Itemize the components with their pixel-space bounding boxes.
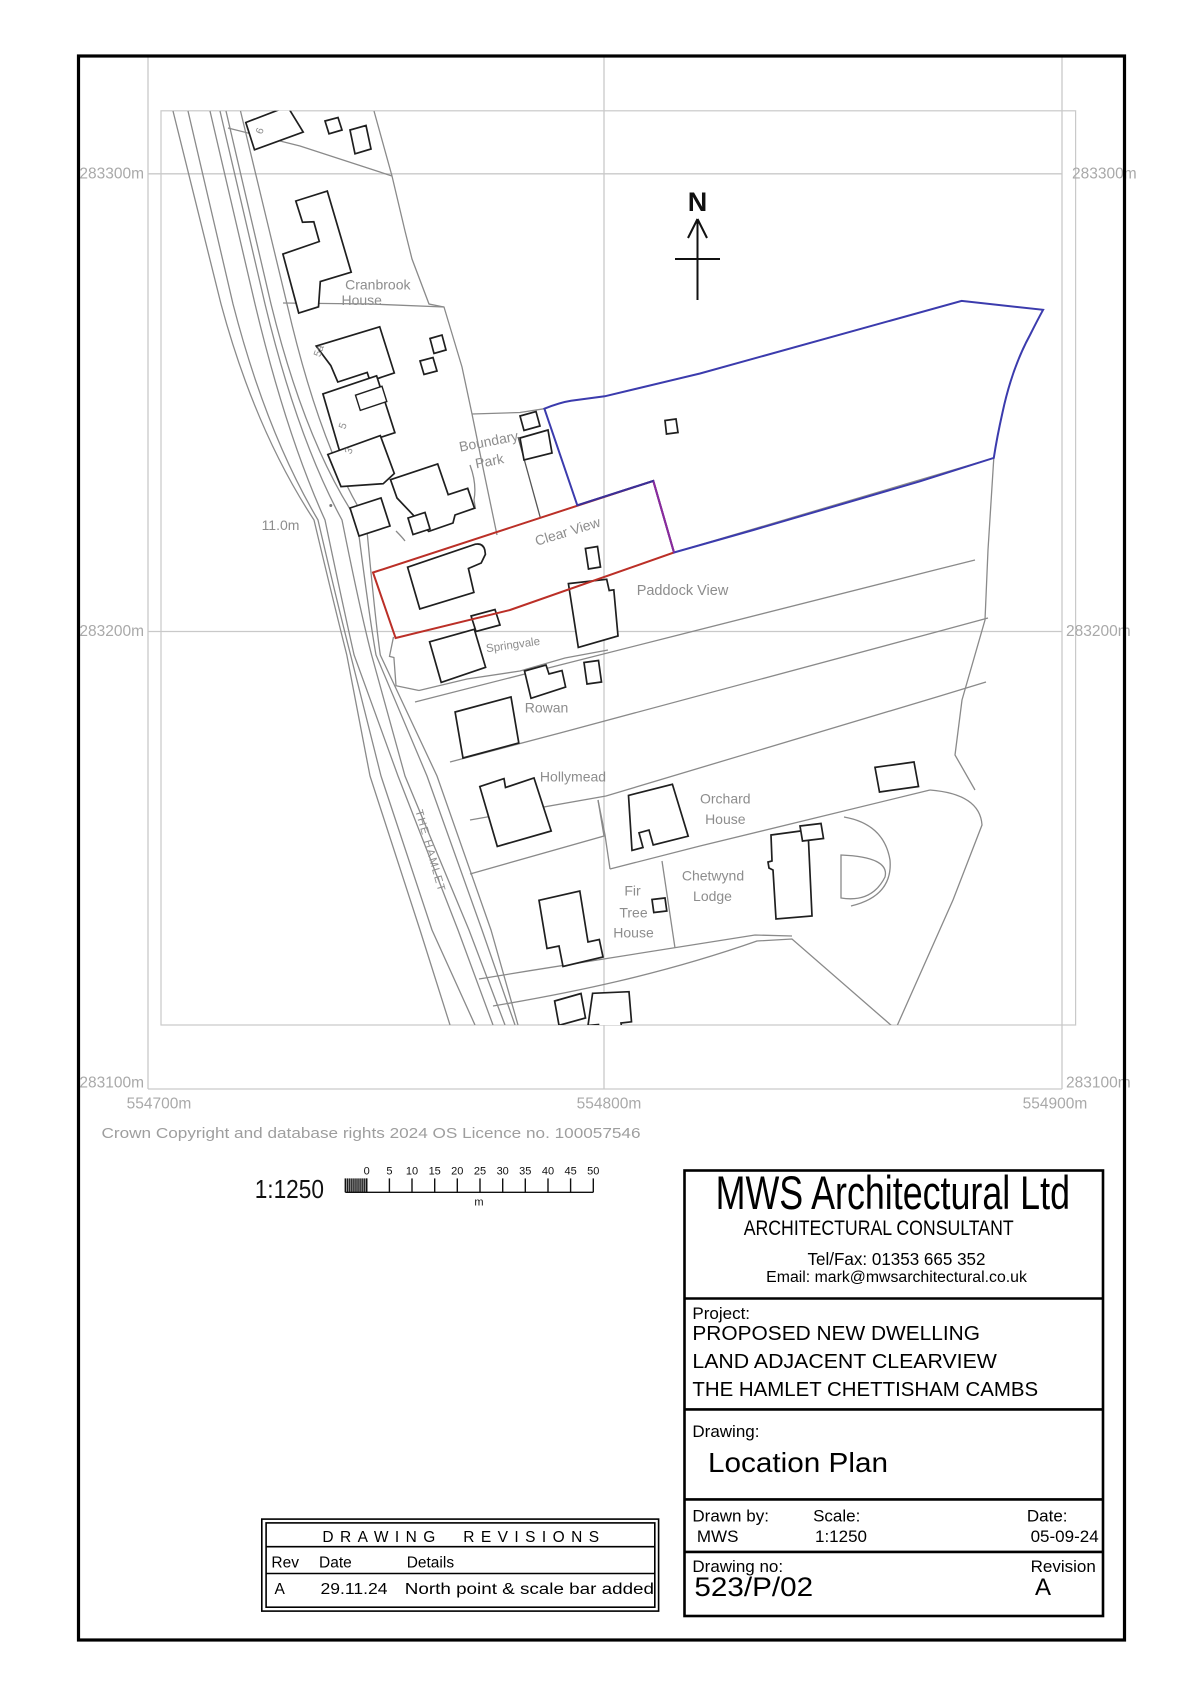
svg-text:Lodge: Lodge xyxy=(693,888,732,904)
svg-text:ARCHITECTURAL CONSULTANT: ARCHITECTURAL CONSULTANT xyxy=(744,1217,1014,1240)
svg-text:15: 15 xyxy=(429,1166,441,1178)
svg-text:283300m: 283300m xyxy=(79,166,144,183)
svg-text:North point & scale bar added: North point & scale bar added xyxy=(405,1581,654,1598)
svg-text:MWS Architectural Ltd: MWS Architectural Ltd xyxy=(716,1166,1070,1219)
svg-text:40: 40 xyxy=(542,1166,554,1178)
svg-text:11.0m: 11.0m xyxy=(262,517,300,533)
svg-text:Date: Date xyxy=(319,1555,352,1572)
svg-text:LAND ADJACENT CLEARVIEW: LAND ADJACENT CLEARVIEW xyxy=(692,1351,997,1373)
svg-text:35: 35 xyxy=(519,1166,531,1178)
svg-text:Email: mark@mwsarchitectural.c: Email: mark@mwsarchitectural.co.uk xyxy=(766,1269,1027,1286)
svg-text:554800m: 554800m xyxy=(577,1096,642,1113)
svg-text:283100m: 283100m xyxy=(1066,1075,1131,1092)
svg-text:283200m: 283200m xyxy=(79,623,144,640)
svg-text:30: 30 xyxy=(497,1166,509,1178)
svg-text:A: A xyxy=(1035,1574,1051,1601)
svg-text:Tel/Fax: 01353 665 352: Tel/Fax: 01353 665 352 xyxy=(808,1249,986,1269)
svg-text:283200m: 283200m xyxy=(1066,623,1131,640)
svg-text:5: 5 xyxy=(386,1166,392,1178)
svg-text:PROPOSED NEW DWELLING: PROPOSED NEW DWELLING xyxy=(692,1323,980,1345)
svg-text:Rowan: Rowan xyxy=(525,700,569,716)
svg-text:House: House xyxy=(341,292,382,308)
svg-text:DRAWING REVISIONS: DRAWING REVISIONS xyxy=(322,1529,606,1546)
svg-text:m: m xyxy=(474,1197,483,1209)
svg-text:Chetwynd: Chetwynd xyxy=(682,868,744,884)
svg-text:45: 45 xyxy=(564,1166,576,1178)
svg-text:25: 25 xyxy=(474,1166,486,1178)
svg-text:N: N xyxy=(688,187,708,217)
svg-text:Rev: Rev xyxy=(271,1555,299,1572)
svg-text:Paddock View: Paddock View xyxy=(637,583,729,599)
svg-text:A: A xyxy=(275,1581,286,1598)
svg-text:Crown Copyright and database r: Crown Copyright and database rights 2024… xyxy=(102,1126,641,1142)
svg-text:Project:: Project: xyxy=(692,1304,750,1323)
svg-text:Date:: Date: xyxy=(1027,1507,1068,1526)
svg-text:Cranbrook: Cranbrook xyxy=(345,277,411,293)
svg-text:554900m: 554900m xyxy=(1023,1096,1088,1113)
svg-text:House: House xyxy=(705,811,746,827)
svg-text:10: 10 xyxy=(406,1166,418,1178)
svg-text:Drawn by:: Drawn by: xyxy=(692,1507,769,1526)
svg-text:Location Plan: Location Plan xyxy=(708,1447,888,1478)
svg-text:Tree: Tree xyxy=(619,905,647,921)
svg-text:House: House xyxy=(613,925,654,941)
svg-text:1:1250: 1:1250 xyxy=(255,1174,324,1204)
svg-text:283300m: 283300m xyxy=(1072,166,1137,183)
svg-text:1:1250: 1:1250 xyxy=(815,1527,867,1546)
svg-text:523/P/02: 523/P/02 xyxy=(694,1572,813,1602)
svg-text:554700m: 554700m xyxy=(127,1096,192,1113)
svg-text:MWS: MWS xyxy=(697,1527,739,1546)
svg-text:Details: Details xyxy=(407,1555,455,1572)
svg-text:Orchard: Orchard xyxy=(700,791,751,807)
svg-text:20: 20 xyxy=(451,1166,463,1178)
svg-text:05-09-24: 05-09-24 xyxy=(1031,1527,1099,1546)
svg-text:283100m: 283100m xyxy=(79,1075,144,1092)
svg-text:THE HAMLET CHETTISHAM CAMBS: THE HAMLET CHETTISHAM CAMBS xyxy=(692,1379,1038,1401)
svg-text:0: 0 xyxy=(364,1166,370,1178)
svg-text:Scale:: Scale: xyxy=(813,1507,860,1526)
svg-text:Fir: Fir xyxy=(624,883,641,899)
svg-text:Hollymead: Hollymead xyxy=(540,769,606,785)
svg-text:50: 50 xyxy=(587,1166,599,1178)
svg-text:Drawing:: Drawing: xyxy=(692,1422,759,1441)
svg-text:29.11.24: 29.11.24 xyxy=(321,1581,388,1598)
